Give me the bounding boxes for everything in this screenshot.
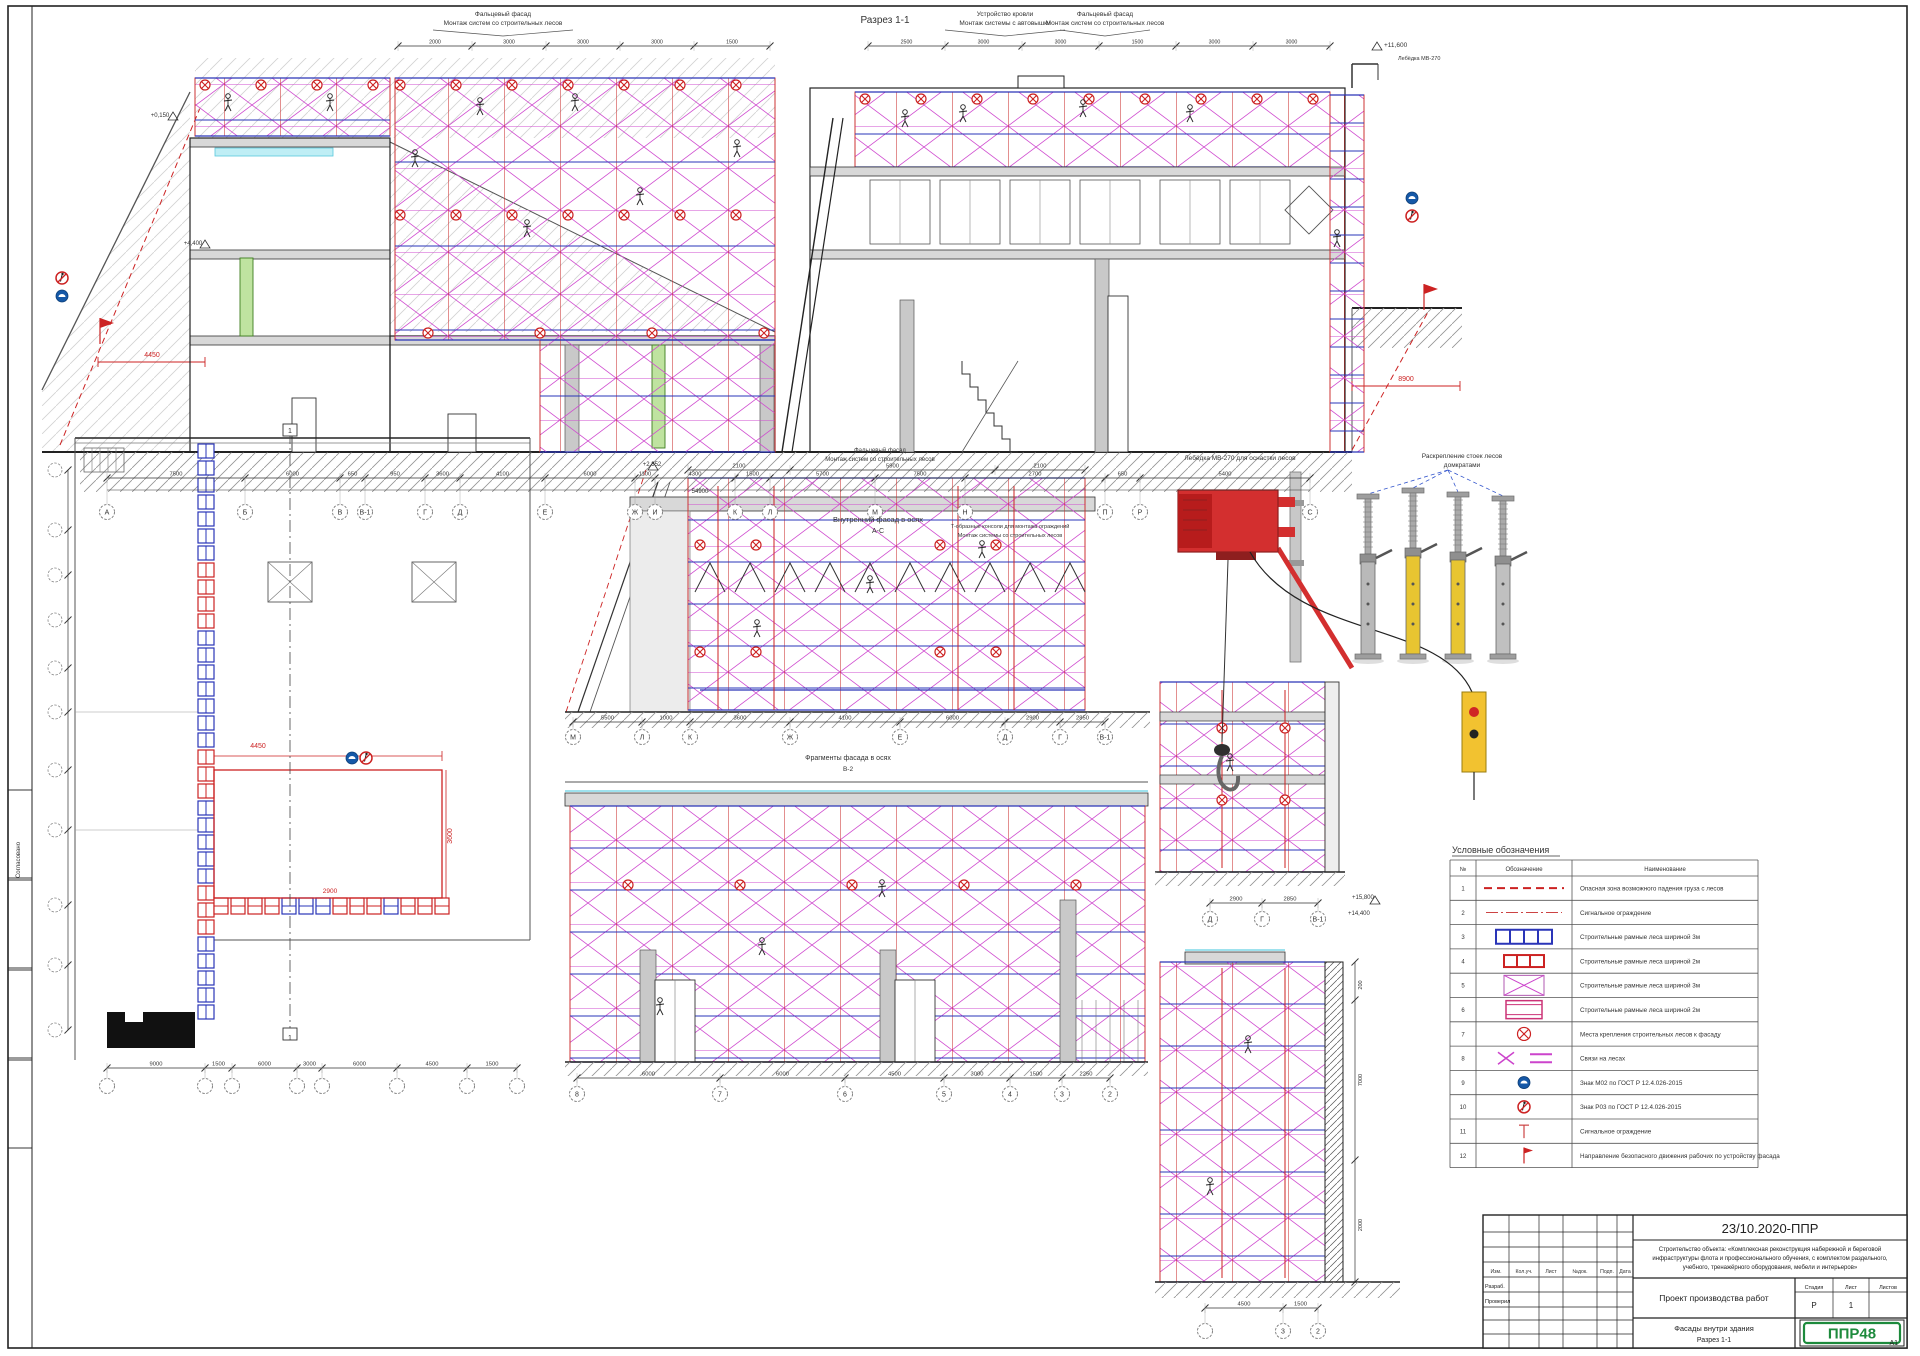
anchor-point-icon <box>535 328 545 338</box>
legend-row-name: Сигнальное ограждение <box>1580 1128 1652 1135</box>
mandatory-sign-icon <box>346 752 358 764</box>
dim-label: 5900 <box>886 464 899 470</box>
scaffolding-grid <box>1160 962 1325 1282</box>
drawing-shape <box>214 770 442 898</box>
logo-text: ППР48 <box>1828 1326 1876 1343</box>
anchor-point-icon <box>1518 1027 1531 1040</box>
sheet-value: 1 <box>1849 1301 1854 1310</box>
drawing-shape <box>1400 654 1426 659</box>
drawing-shape <box>1376 550 1392 558</box>
anchor-point-icon <box>1140 94 1150 104</box>
axis-bubble <box>48 463 62 477</box>
dim-label: 6000 <box>584 472 597 478</box>
anchor-point-icon <box>647 328 657 338</box>
axis-bubble <box>100 1079 115 1094</box>
dim-label: 200 <box>1358 980 1364 989</box>
plan-section-mark-top: 1 <box>288 428 292 435</box>
drawing-shape <box>1457 583 1460 586</box>
drawing-shape <box>1412 603 1415 606</box>
dim-label: 4300 <box>689 472 702 478</box>
legend-row-num: 5 <box>1461 984 1465 990</box>
axis-label: 5 <box>942 1092 946 1099</box>
anchor-point-icon <box>675 80 685 90</box>
axis-label: 4 <box>1008 1092 1012 1099</box>
anchor-point-icon <box>751 647 761 657</box>
anchor-point-icon <box>507 80 517 90</box>
anchor-point-icon <box>935 540 945 550</box>
drawing-shape <box>782 118 833 452</box>
axis-label: Е <box>898 735 903 742</box>
dim-label: 1500 <box>726 40 738 46</box>
drawing-shape <box>1330 95 1364 452</box>
dim-label: 3000 <box>1209 40 1221 46</box>
dim-label: 9000 <box>150 1062 163 1068</box>
drawing-shape <box>1457 623 1460 626</box>
callout-left-1: Фальцевый фасад <box>475 10 531 18</box>
anchor-point-icon <box>695 647 705 657</box>
axis-label: Л <box>640 735 645 742</box>
axis-bubble <box>48 898 62 912</box>
tconsole-caption-1: Т-образные консоли для монтажа ограждени… <box>951 523 1070 530</box>
drawing-shape <box>1355 654 1381 659</box>
drawing-shape <box>1325 682 1339 872</box>
sheet-title-2: Разрез 1-1 <box>1697 1337 1731 1344</box>
callout-left-2: Монтаж систем со строительных лесов <box>444 20 563 27</box>
format-label: А1 <box>1889 1340 1898 1347</box>
anchor-point-icon <box>675 210 685 220</box>
axis-label: В-1 <box>1313 917 1324 924</box>
drawing-shape <box>1060 30 1105 36</box>
drawing-shape <box>1155 872 1345 886</box>
anchor-point-icon <box>731 80 741 90</box>
legend-row-num: 4 <box>1461 959 1465 965</box>
axis-label: 8 <box>575 1092 579 1099</box>
axis-bubble <box>290 1079 305 1094</box>
fraga-callout-2: Монтаж систем со строительных лесов <box>825 457 935 463</box>
prohibition-sign-icon <box>1518 1101 1530 1113</box>
axis-bubble <box>510 1079 525 1094</box>
prohibition-sign-icon <box>360 752 372 764</box>
dim-label: 3000 <box>503 40 515 46</box>
axis-bubble <box>48 661 62 675</box>
titleblock-col-label: Дата <box>1619 1269 1631 1275</box>
anchor-point-icon <box>991 540 1001 550</box>
dim-label: 1100 <box>639 472 651 478</box>
dim-label: 2900 <box>1230 897 1243 903</box>
titleblock-col-label: Кол.уч. <box>1516 1269 1533 1275</box>
drawing-shape <box>1424 284 1438 294</box>
red-flag-icon <box>1424 284 1438 310</box>
anchor-point-icon <box>1071 880 1081 890</box>
dim-label: 650 <box>348 472 358 478</box>
axis-label: 6 <box>843 1092 847 1099</box>
drawing-shape <box>1448 470 1458 492</box>
drawing-shape <box>448 414 476 452</box>
drawing-shape <box>1155 1282 1400 1298</box>
callout-mid-2: Монтаж системы с автовышки <box>959 20 1051 27</box>
anchor-point-icon <box>451 210 461 220</box>
drawing-shape <box>1095 259 1109 452</box>
jacks-label-1: Раскрепление стоек лесов <box>1422 453 1503 460</box>
dim-label: 6000 <box>258 1062 271 1068</box>
titleblock-col-label: Изм. <box>1490 1269 1501 1275</box>
fragc-elevation-2: +14,400 <box>1348 911 1371 917</box>
drawing-shape <box>1105 30 1150 36</box>
drawing-shape <box>1060 900 1076 1062</box>
drawing-shape <box>1496 564 1510 654</box>
red-dim-right: 8900 <box>1398 376 1414 383</box>
red-flag-icon <box>1524 1147 1533 1153</box>
dim-label: 1500 <box>746 472 759 478</box>
legend-row-name: Строительные рамные леса шириной 3м <box>1580 982 1700 990</box>
drawing-shape <box>640 950 656 1062</box>
scaffolding-grid <box>195 78 390 136</box>
drawing-shape <box>1447 492 1469 497</box>
anchor-point-icon <box>563 210 573 220</box>
axis-bubble <box>460 1079 475 1094</box>
drawing-shape <box>1108 296 1128 452</box>
axis-label: Р <box>1138 510 1143 517</box>
section-caption-2: А-С <box>872 528 884 535</box>
legend-row-name: Сигнальное ограждение <box>1580 910 1652 917</box>
legend-row-num: 9 <box>1461 1081 1465 1087</box>
axis-bubble <box>48 613 62 627</box>
anchor-point-icon <box>959 880 969 890</box>
mandatory-sign-icon <box>1406 192 1418 204</box>
dim-label: 3000 <box>1286 40 1298 46</box>
anchor-point-icon <box>619 210 629 220</box>
legend-row-num: 2 <box>1461 911 1465 917</box>
legend-row-num: 12 <box>1460 1154 1467 1160</box>
dim-label: 6000 <box>286 472 299 478</box>
axis-label: П <box>1102 510 1107 517</box>
drawing-shape <box>1367 583 1370 586</box>
anchor-point-icon <box>1028 94 1038 104</box>
dim-label: 1000 <box>660 716 673 722</box>
stage-value: Р <box>1811 1301 1816 1310</box>
drawing-shape <box>1502 603 1505 606</box>
drawing-shape <box>1352 308 1462 348</box>
legend-col-num: № <box>1460 866 1466 873</box>
drawing-canvas: 20070002000 №ОбозначениеНаименование1Опа… <box>0 0 1920 1356</box>
plan-section-mark-bottom: 1 <box>288 1035 292 1042</box>
axis-label: В-1 <box>1100 735 1111 742</box>
legend-row-num: 11 <box>1460 1129 1467 1135</box>
legend-row-name: Знак М02 по ГОСТ Р 12.4.026-2015 <box>1580 1080 1683 1087</box>
legend-row-num: 3 <box>1461 935 1465 941</box>
drawing-shape <box>1523 1102 1525 1104</box>
drawing-shape <box>945 30 1005 36</box>
legend-row-name: Опасная зона возможного падения груза с … <box>1580 885 1724 892</box>
axis-bubble <box>48 523 62 537</box>
scaffolding-grid <box>688 478 1085 710</box>
roof-hoist-label: Лебёдка МВ-270 <box>1398 56 1440 62</box>
anchor-point-icon <box>731 210 741 220</box>
callout-right-1: Фальцевый фасад <box>1077 10 1133 18</box>
screw-jacks-photo <box>1352 470 1527 664</box>
drawing-shape <box>1492 496 1514 501</box>
axis-bubble <box>225 1079 240 1094</box>
drawing-shape <box>1504 955 1544 967</box>
callout-right-2: Монтаж систем со строительных лесов <box>1046 20 1165 27</box>
facade-diamond <box>1285 186 1333 234</box>
axis-label: И <box>652 510 657 517</box>
dim-label: 6000 <box>642 1072 655 1078</box>
drawing-shape <box>1470 730 1479 739</box>
anchor-point-icon <box>935 647 945 657</box>
dim-label: 1500 <box>486 1062 499 1068</box>
object-text-3: учебного, тренажёрного оборудования, меб… <box>1683 1265 1858 1271</box>
legend-row-num: 1 <box>1461 886 1465 892</box>
drawing-shape <box>395 78 775 340</box>
drawing-shape <box>1357 494 1379 499</box>
dim-label: 4100 <box>839 716 852 722</box>
section-caption-1: Внутренний фасад в осях <box>833 515 923 524</box>
fraga-caption-1: Фрагменты фасада в осях <box>805 755 891 762</box>
axis-bubble <box>1198 1324 1213 1339</box>
legend-row-num: 8 <box>1461 1057 1465 1063</box>
sheets-label: Листов <box>1879 1285 1897 1291</box>
drawing-shape <box>1511 552 1527 560</box>
drawing-shape <box>1005 30 1065 36</box>
dim-label: 2250 <box>1080 1072 1093 1078</box>
doc-title: Проект производства работ <box>1659 1293 1768 1303</box>
sheet-label: Лист <box>1845 1285 1857 1291</box>
section-view <box>56 30 1438 452</box>
object-text-2: инфраструктуры флота и профессионального… <box>1652 1256 1888 1262</box>
anchor-point-icon <box>759 328 769 338</box>
axis-label: Д <box>1003 735 1008 742</box>
scaffolding-grid <box>1330 95 1364 452</box>
drawing-shape <box>900 300 914 452</box>
dim-label: 2700 <box>1029 472 1042 478</box>
drawing-shape <box>1502 583 1505 586</box>
dim-label: 5700 <box>816 472 829 478</box>
elevation-right: +11,600 <box>1384 42 1408 49</box>
mandatory-sign-icon <box>1518 1077 1530 1089</box>
object-text-1: Строительство объекта: «Комплексная реко… <box>1659 1246 1881 1253</box>
drawing-shape <box>1367 623 1370 626</box>
drawing-shape <box>125 1012 143 1022</box>
legend-row-num: 6 <box>1461 1008 1465 1014</box>
drawing-shape <box>1160 962 1325 1282</box>
dim-label: 6000 <box>353 1062 366 1068</box>
dim-label: 2500 <box>901 40 913 46</box>
legend-col-name: Наименование <box>1644 867 1686 873</box>
legend-row-name: Знак Р03 по ГОСТ Р 12.4.026-2015 <box>1580 1104 1682 1111</box>
drawing-shape <box>1325 962 1343 1282</box>
drawing-shape <box>1466 548 1482 556</box>
plan-red-dim-3: 2900 <box>323 888 338 895</box>
drawing-shape <box>1160 775 1325 784</box>
drawing-shape <box>1490 654 1516 659</box>
fraga-caption-2: В-2 <box>843 766 854 773</box>
drawing-shape <box>8 970 32 1058</box>
anchor-point-icon <box>860 94 870 104</box>
axis-label: 3 <box>1281 1329 1285 1336</box>
anchor-point-icon <box>695 540 705 550</box>
anchor-point-icon <box>916 94 926 104</box>
legend-table: №ОбозначениеНаименование1Опасная зона во… <box>1450 856 1780 1168</box>
drawing-shape <box>1361 562 1375 654</box>
dim-label: 6000 <box>946 716 959 722</box>
anchor-point-icon <box>1196 94 1206 104</box>
dim-label: 3000 <box>303 1062 316 1068</box>
axis-label: А <box>105 510 110 517</box>
drawing-shape <box>1469 707 1479 717</box>
axis-label: Ж <box>787 735 794 742</box>
drawing-shape <box>190 138 390 147</box>
drawing-shape <box>61 273 63 275</box>
drawing-shape <box>810 167 1345 176</box>
drawing-shape <box>688 478 1085 710</box>
axis-label: В <box>338 510 343 517</box>
axis-label: 2 <box>1316 1329 1320 1336</box>
prohibition-sign-icon <box>1406 210 1418 222</box>
drawing-shape <box>433 30 503 36</box>
dim-label: 5400 <box>1219 472 1232 478</box>
dim-label: 2100 <box>733 464 746 470</box>
dim-label: 3000 <box>1055 40 1067 46</box>
hoist-label: Лебёдка МВ-270 для оснастки лесов <box>1184 454 1296 462</box>
drawing-shape <box>1457 603 1460 606</box>
drawing-shape <box>1451 560 1465 654</box>
dim-label: 2000 <box>1358 1219 1364 1231</box>
axis-bubble <box>48 763 62 777</box>
anchor-point-icon <box>395 80 405 90</box>
legend-row-name: Строительные рамные леса шириной 2м <box>1580 1006 1700 1014</box>
total-dim: 54900 <box>692 489 709 495</box>
elevation-left: +4,400 <box>184 241 203 247</box>
stage-label: Стадия <box>1805 1285 1824 1291</box>
role-checked: Проверил <box>1485 1299 1510 1305</box>
plan-red-dim-1: 4450 <box>250 743 266 750</box>
anchor-point-icon <box>1217 795 1227 805</box>
axis-label: Г <box>423 510 427 517</box>
drawing-shape <box>880 950 896 1062</box>
anchor-point-icon <box>619 80 629 90</box>
dim-label: 3000 <box>978 40 990 46</box>
axis-label: Ж <box>632 510 639 517</box>
legend-row-name: Места крепления строительных лесов к фас… <box>1580 1031 1722 1038</box>
drawing-shape <box>1502 623 1505 626</box>
axis-bubble <box>48 568 62 582</box>
drawing-shape <box>1160 712 1325 721</box>
titleblock-col-label: №док. <box>1572 1269 1587 1275</box>
drawing-shape <box>1412 583 1415 586</box>
axis-bubble <box>48 705 62 719</box>
fraga-elevation: +2,352 <box>643 462 662 468</box>
side-stamp-label: Согласовано <box>16 841 22 878</box>
dim-label: 1500 <box>1030 1072 1043 1078</box>
dim-label: 1500 <box>1294 1302 1307 1308</box>
drawing-shape <box>8 1060 32 1148</box>
axis-bubble <box>48 823 62 837</box>
drawing-shape <box>1421 544 1437 552</box>
anchor-point-icon <box>256 80 266 90</box>
drawing-shape <box>1402 488 1424 493</box>
dim-label: 2100 <box>1034 464 1047 470</box>
mandatory-sign-icon <box>56 290 68 302</box>
axis-label: 2 <box>1108 1092 1112 1099</box>
axis-label: Б <box>243 510 248 517</box>
anchor-point-icon <box>451 80 461 90</box>
drawing-shape <box>630 511 690 712</box>
legend-title: Условные обозначения <box>1452 845 1549 855</box>
anchor-point-icon <box>368 80 378 90</box>
drawing-shape <box>8 880 32 968</box>
dim-label: 4100 <box>496 472 509 478</box>
legend-row-num: 7 <box>1461 1032 1465 1038</box>
role-developed: Разраб. <box>1485 1284 1505 1290</box>
anchor-point-icon <box>507 210 517 220</box>
scaffolding-grid <box>395 78 775 340</box>
drawing-shape <box>195 78 390 136</box>
prohibition-sign-icon <box>56 272 68 284</box>
drawing-shape <box>565 793 1148 806</box>
dim-label: 3000 <box>651 40 663 46</box>
legend-row-name: Строительные рамные леса шириной 2м <box>1580 957 1700 965</box>
dim-label: 3000 <box>577 40 589 46</box>
dim-label: 6000 <box>776 1072 789 1078</box>
axis-label: Д <box>458 510 463 517</box>
dim-label: 2900 <box>1026 716 1039 722</box>
dim-label: 7500 <box>170 472 183 478</box>
dim-label: 1500 <box>1132 40 1144 46</box>
elevation-marker <box>1372 42 1382 50</box>
anchor-point-icon <box>423 328 433 338</box>
legend-col-sym: Обозначение <box>1505 867 1543 873</box>
axis-label: Д <box>1208 917 1213 924</box>
fragc-elevation-1: +15,800 <box>1352 895 1375 901</box>
anchor-point-icon <box>1280 795 1290 805</box>
axis-bubble <box>315 1079 330 1094</box>
drawing-shape <box>365 753 367 755</box>
dim-label: 4500 <box>888 1072 901 1078</box>
red-dim-left: 4450 <box>144 352 160 359</box>
axis-label: Л <box>768 510 773 517</box>
axis-label: Г <box>1260 917 1264 924</box>
axis-label: 7 <box>718 1092 722 1099</box>
drawing-shape <box>1367 603 1370 606</box>
legend-row-name: Связи на лесах <box>1580 1056 1626 1063</box>
dim-label: 7500 <box>914 472 927 478</box>
titleblock-col-label: Лист <box>1545 1269 1557 1275</box>
anchor-point-icon <box>623 880 633 890</box>
scaffolding-grid <box>540 340 775 452</box>
drawing-shape <box>1018 76 1064 88</box>
anchor-point-icon <box>1308 94 1318 104</box>
axis-bubble <box>48 958 62 972</box>
axis-bubble <box>48 1023 62 1037</box>
facade-fragment-a <box>565 462 1150 728</box>
dim-label: 3600 <box>436 472 449 478</box>
callout-mid-1: Устройство кровли <box>977 10 1034 18</box>
dim-label: 7000 <box>1358 1074 1364 1086</box>
anchor-point-icon <box>563 80 573 90</box>
drawing-shape <box>1506 1001 1542 1019</box>
dim-label: 1500 <box>212 1062 225 1068</box>
legend-row-name: Направление безопасного движения рабочих… <box>1580 1152 1780 1160</box>
anchor-point-icon <box>847 880 857 890</box>
dim-label: 2850 <box>1076 716 1089 722</box>
anchor-point-icon <box>972 94 982 104</box>
drawing-shape <box>1178 494 1212 548</box>
dim-label: 3600 <box>734 716 747 722</box>
anchor-point-icon <box>1280 723 1290 733</box>
axis-label: М <box>570 735 576 742</box>
drawing-shape <box>1412 623 1415 626</box>
